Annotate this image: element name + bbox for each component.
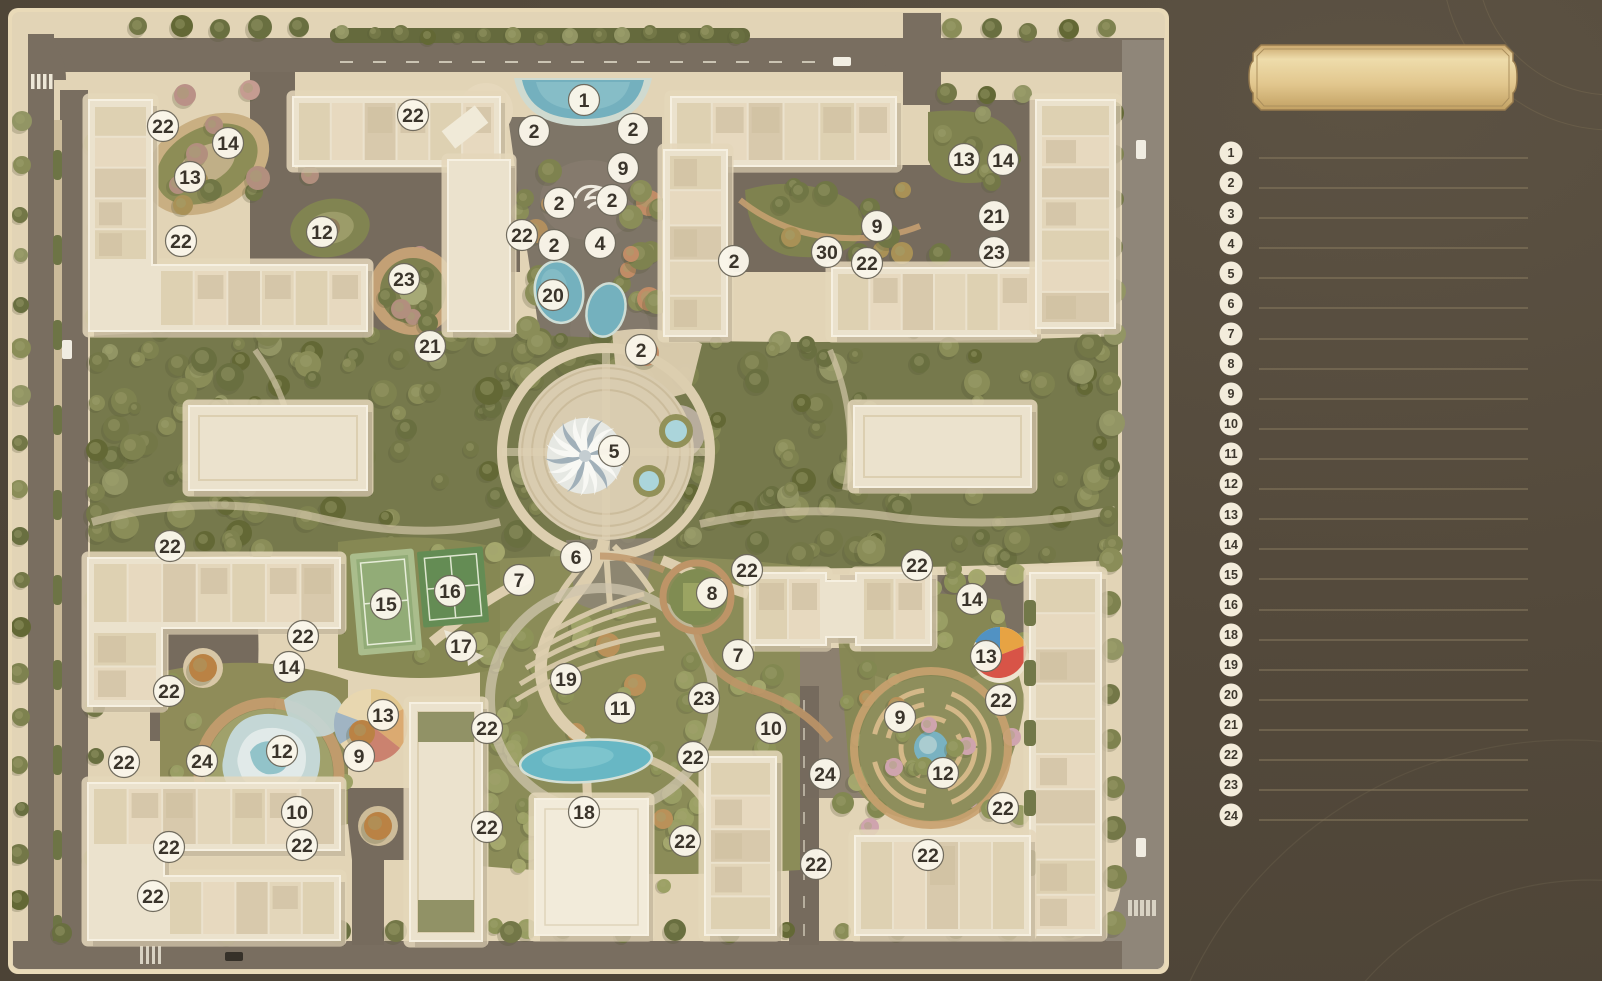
- svg-text:22: 22: [158, 681, 180, 703]
- svg-text:16: 16: [439, 581, 461, 603]
- svg-text:10: 10: [1224, 417, 1238, 431]
- svg-text:5: 5: [1228, 267, 1235, 281]
- svg-text:22: 22: [682, 747, 704, 769]
- svg-text:1: 1: [1228, 146, 1235, 160]
- svg-text:7: 7: [1228, 327, 1235, 341]
- svg-text:22: 22: [992, 798, 1014, 820]
- svg-text:11: 11: [1224, 447, 1237, 461]
- svg-text:22: 22: [291, 835, 313, 857]
- svg-text:22: 22: [113, 752, 135, 774]
- svg-text:22: 22: [511, 225, 533, 247]
- svg-text:22: 22: [1224, 748, 1238, 762]
- svg-text:9: 9: [1228, 387, 1235, 401]
- svg-text:22: 22: [805, 854, 827, 876]
- svg-text:24: 24: [1224, 809, 1238, 823]
- svg-text:2: 2: [636, 340, 647, 362]
- svg-text:2: 2: [628, 119, 639, 141]
- svg-text:18: 18: [573, 802, 595, 824]
- svg-text:14: 14: [217, 133, 239, 155]
- svg-text:10: 10: [286, 802, 308, 824]
- svg-text:1: 1: [579, 90, 590, 112]
- svg-text:2: 2: [554, 193, 565, 215]
- svg-text:20: 20: [542, 285, 564, 307]
- svg-text:21: 21: [1224, 718, 1238, 732]
- svg-text:2: 2: [607, 190, 618, 212]
- svg-text:23: 23: [983, 242, 1005, 264]
- svg-text:22: 22: [674, 831, 696, 853]
- svg-text:7: 7: [514, 570, 525, 592]
- svg-text:22: 22: [170, 231, 192, 253]
- svg-text:22: 22: [990, 690, 1012, 712]
- svg-text:8: 8: [1228, 357, 1235, 371]
- svg-text:23: 23: [393, 269, 415, 291]
- svg-text:4: 4: [595, 233, 606, 255]
- svg-text:22: 22: [736, 560, 758, 582]
- svg-text:12: 12: [311, 222, 333, 244]
- svg-text:12: 12: [1224, 477, 1238, 491]
- svg-text:19: 19: [555, 669, 577, 691]
- svg-text:11: 11: [610, 698, 631, 720]
- svg-text:22: 22: [142, 886, 164, 908]
- svg-text:3: 3: [1228, 207, 1235, 221]
- svg-text:6: 6: [1228, 297, 1235, 311]
- svg-text:14: 14: [1224, 538, 1238, 552]
- svg-text:22: 22: [152, 116, 174, 138]
- svg-text:22: 22: [917, 845, 939, 867]
- svg-text:14: 14: [992, 150, 1014, 172]
- svg-text:9: 9: [618, 158, 629, 180]
- svg-text:22: 22: [476, 718, 498, 740]
- svg-text:30: 30: [816, 242, 838, 264]
- svg-text:23: 23: [693, 688, 715, 710]
- svg-text:13: 13: [1224, 508, 1238, 522]
- svg-text:14: 14: [961, 589, 983, 611]
- svg-text:14: 14: [278, 657, 300, 679]
- svg-text:8: 8: [707, 583, 718, 605]
- svg-text:17: 17: [450, 636, 472, 658]
- svg-text:18: 18: [1224, 628, 1238, 642]
- svg-text:13: 13: [179, 167, 201, 189]
- svg-text:13: 13: [372, 705, 394, 727]
- svg-text:21: 21: [983, 206, 1005, 228]
- svg-text:16: 16: [1224, 598, 1238, 612]
- svg-text:24: 24: [191, 751, 213, 773]
- svg-text:22: 22: [906, 555, 928, 577]
- svg-text:2: 2: [729, 251, 740, 273]
- svg-text:5: 5: [609, 441, 620, 463]
- svg-text:22: 22: [402, 105, 424, 127]
- svg-text:2: 2: [529, 121, 540, 143]
- svg-text:22: 22: [476, 817, 498, 839]
- svg-text:15: 15: [1224, 568, 1238, 582]
- svg-text:13: 13: [975, 646, 997, 668]
- svg-text:12: 12: [932, 763, 954, 785]
- svg-text:13: 13: [953, 149, 975, 171]
- svg-text:22: 22: [159, 536, 181, 558]
- svg-text:23: 23: [1224, 778, 1238, 792]
- svg-text:20: 20: [1224, 688, 1238, 702]
- svg-text:22: 22: [856, 253, 878, 275]
- svg-text:9: 9: [354, 746, 365, 768]
- svg-text:9: 9: [895, 707, 906, 729]
- svg-text:6: 6: [571, 547, 582, 569]
- svg-text:12: 12: [271, 741, 293, 763]
- svg-text:19: 19: [1224, 658, 1238, 672]
- svg-text:24: 24: [814, 764, 836, 786]
- svg-text:22: 22: [158, 837, 180, 859]
- svg-text:2: 2: [549, 235, 560, 257]
- svg-text:2: 2: [1228, 176, 1235, 190]
- svg-text:21: 21: [419, 336, 441, 358]
- svg-text:22: 22: [292, 626, 314, 648]
- svg-text:10: 10: [760, 718, 782, 740]
- svg-text:9: 9: [872, 216, 883, 238]
- svg-text:15: 15: [375, 594, 397, 616]
- svg-text:4: 4: [1228, 237, 1235, 251]
- svg-text:7: 7: [733, 645, 744, 667]
